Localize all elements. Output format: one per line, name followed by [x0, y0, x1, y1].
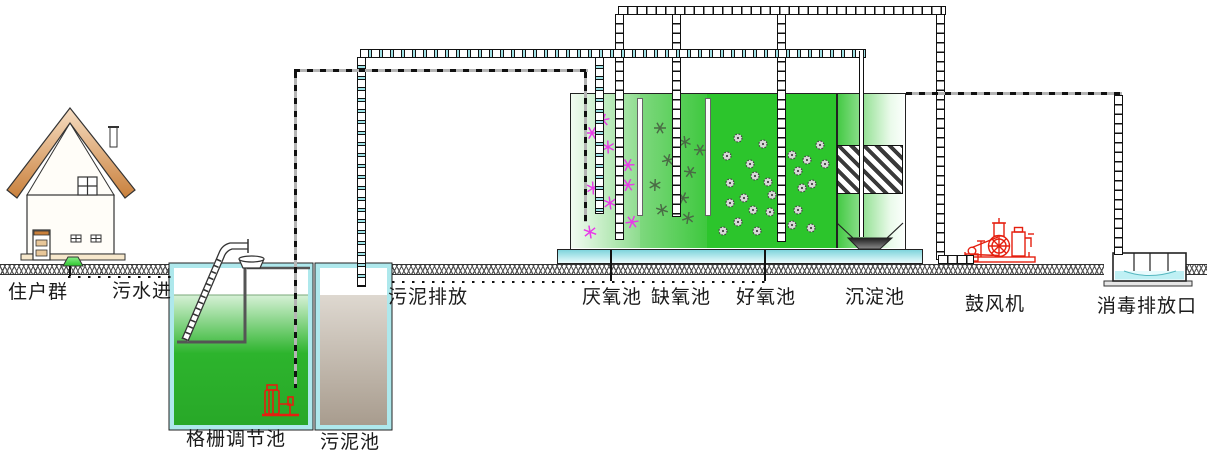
feed-drop-pipe — [584, 72, 587, 222]
sludge-tank — [315, 263, 392, 430]
label-residents: 住户群 — [8, 277, 68, 304]
anaerobic-drain-riser — [610, 250, 612, 281]
anaerobic-bacteria-icon — [584, 114, 639, 239]
label-sewage-in: 污水进 — [112, 276, 172, 303]
label-sludge-tank: 污泥池 — [320, 427, 380, 454]
sludge-return-anaerobic-pipe — [595, 57, 604, 214]
house-outlet-riser — [69, 266, 71, 276]
feed-header-pipe — [294, 69, 588, 72]
label-blower: 鼓风机 — [965, 289, 1025, 316]
label-aerobic-tank: 好氧池 — [736, 282, 796, 309]
aerobic-floc-icon — [719, 134, 829, 235]
air-drop-pipe-anoxic — [672, 14, 681, 217]
door-icon — [33, 230, 50, 260]
label-anoxic-tank: 缺氧池 — [651, 282, 711, 309]
hopper-suction-pipe — [859, 51, 864, 237]
sludge-hopper-icon — [837, 223, 903, 249]
label-sludge-discharge: 污泥排放 — [388, 282, 468, 309]
disinfection-outlet-icon — [1098, 248, 1198, 293]
blower-riser-pipe — [936, 14, 945, 260]
aerobic-drain-riser — [764, 250, 766, 281]
grid-regulating-tank — [169, 239, 313, 430]
process-flow-diagram: 住户群 污水进 污泥排放 厌氧池 缺氧池 好氧池 沉淀池 鼓风机 消毒排放口 格… — [0, 0, 1207, 465]
pump-riser-pipe — [294, 72, 297, 388]
house-icon — [4, 100, 149, 270]
gable-window-icon — [78, 177, 97, 195]
sludge-to-sludge-tank-pipe — [357, 57, 366, 287]
screenings-bowl-icon — [239, 256, 264, 268]
label-disinfection-outlet: 消毒排放口 — [1097, 291, 1197, 318]
sludge-return-header-pipe — [360, 49, 866, 58]
blower-outlet-pipe — [938, 255, 974, 264]
pretreatment-tanks — [163, 228, 403, 440]
label-sedimentation-tank: 沉淀池 — [845, 282, 905, 309]
tank-base-slab — [557, 249, 923, 264]
effluent-drop-pipe — [1114, 95, 1123, 255]
label-anaerobic-tank: 厌氧池 — [582, 282, 642, 309]
air-drop-pipe-anaerobic — [615, 14, 624, 240]
effluent-pipe — [906, 92, 1122, 95]
label-grid-regulating-tank: 格栅调节池 — [186, 424, 286, 451]
